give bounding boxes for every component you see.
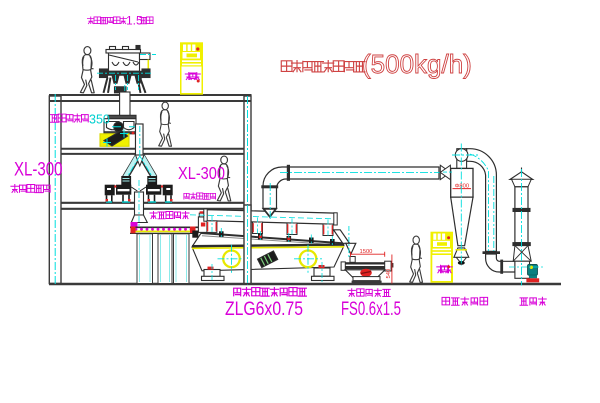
svg-text:(500kg/h): (500kg/h) [362,49,472,79]
svg-text:1500: 1500 [360,249,373,255]
svg-text:1.5: 1.5 [126,14,143,28]
svg-text:XL-300: XL-300 [14,160,63,181]
svg-text:350: 350 [89,113,110,127]
svg-text:540: 540 [386,269,392,279]
svg-text:XL-300: XL-300 [178,163,225,183]
svg-text:FS0.6x1.5: FS0.6x1.5 [341,299,401,320]
svg-text:ZLG6x0.75: ZLG6x0.75 [225,299,303,320]
